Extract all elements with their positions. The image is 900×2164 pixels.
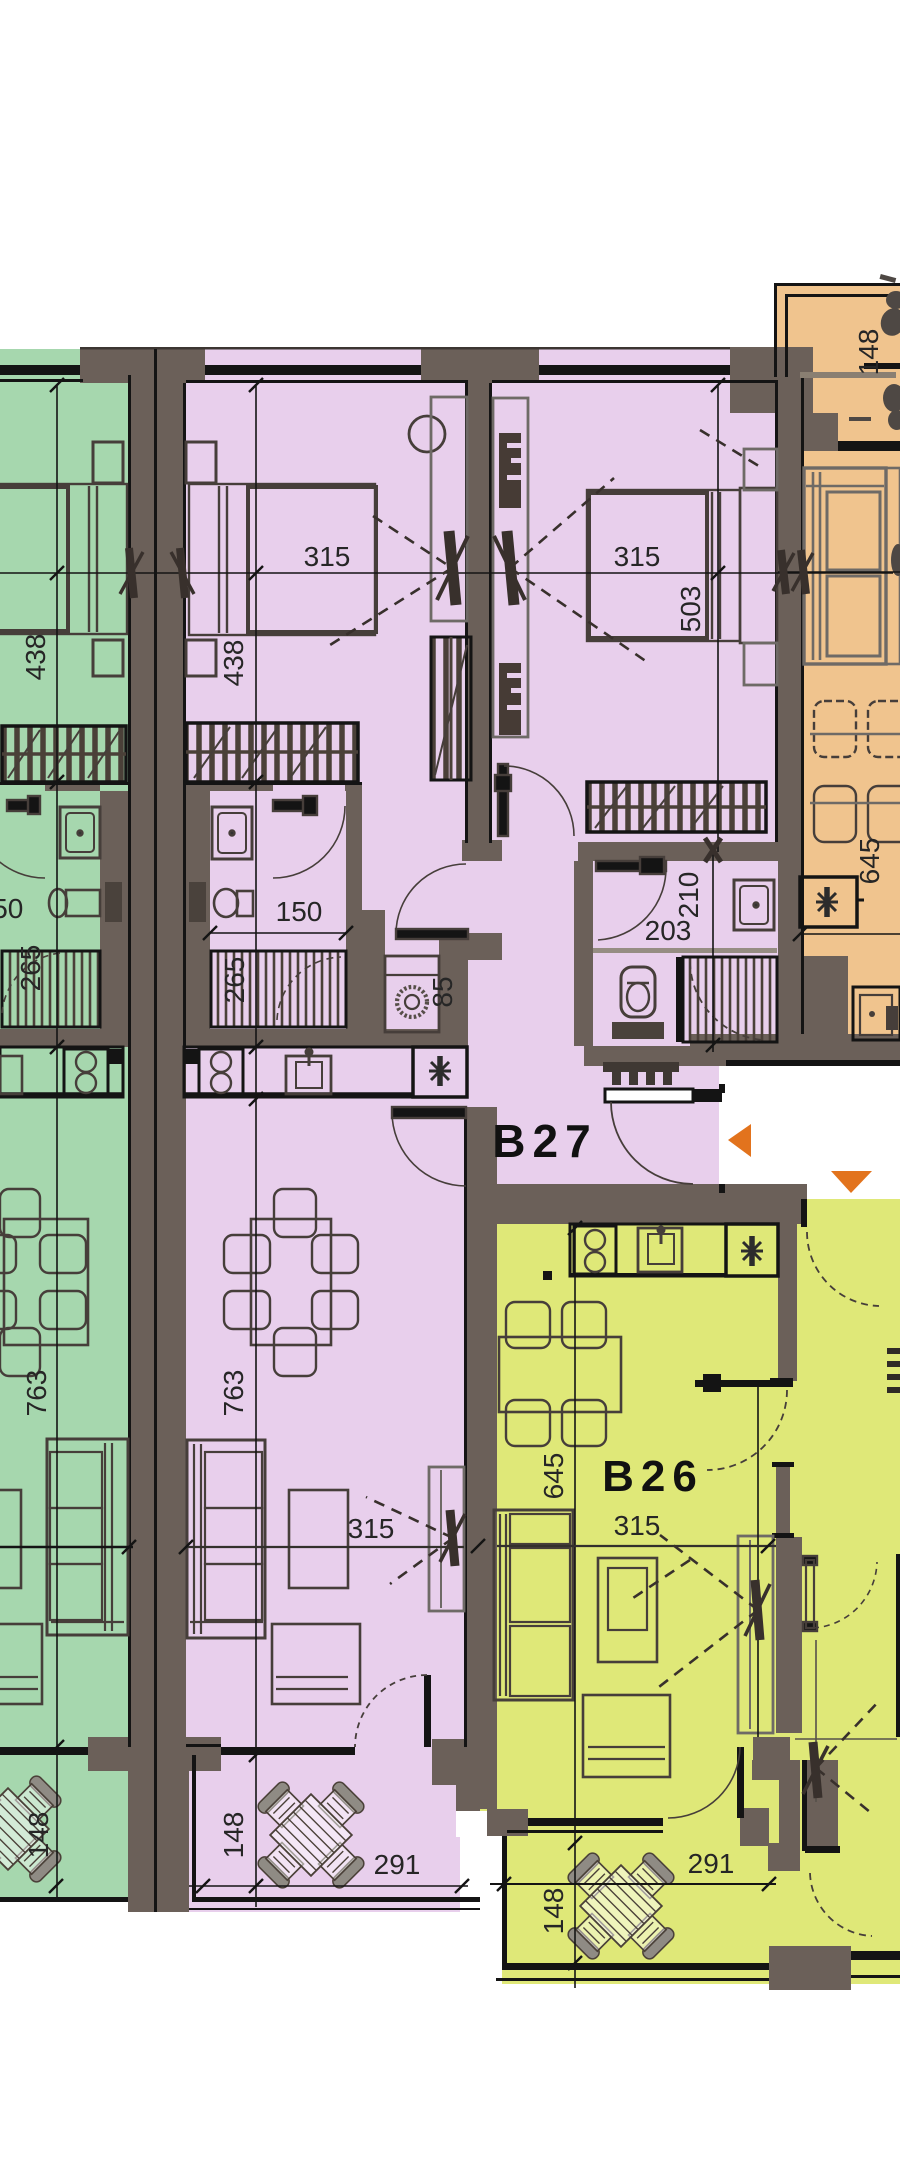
svg-text:763: 763 (218, 1370, 249, 1417)
svg-text:438: 438 (20, 634, 51, 681)
svg-text:210: 210 (673, 872, 704, 919)
svg-text:503: 503 (675, 586, 706, 633)
svg-text:B26: B26 (602, 1452, 704, 1501)
svg-text:265: 265 (219, 957, 250, 1004)
svg-text:148: 148 (538, 1888, 569, 1935)
svg-text:315: 315 (348, 1513, 395, 1544)
svg-text:148: 148 (218, 1812, 249, 1859)
svg-text:85: 85 (427, 976, 458, 1007)
svg-text:763: 763 (21, 1370, 52, 1417)
svg-text:203: 203 (645, 915, 692, 946)
svg-text:315: 315 (614, 1510, 661, 1541)
svg-text:150: 150 (276, 896, 323, 927)
svg-text:148: 148 (853, 329, 884, 376)
svg-text:291: 291 (374, 1849, 421, 1880)
svg-text:645: 645 (538, 1453, 569, 1500)
svg-text:265: 265 (15, 945, 46, 992)
svg-text:150: 150 (0, 893, 23, 924)
svg-text:315: 315 (304, 541, 351, 572)
svg-text:B27: B27 (492, 1115, 597, 1167)
svg-text:438: 438 (218, 640, 249, 687)
svg-text:148: 148 (23, 1812, 54, 1859)
svg-text:315: 315 (614, 541, 661, 572)
svg-text:291: 291 (688, 1848, 735, 1879)
svg-text:645: 645 (854, 838, 885, 885)
